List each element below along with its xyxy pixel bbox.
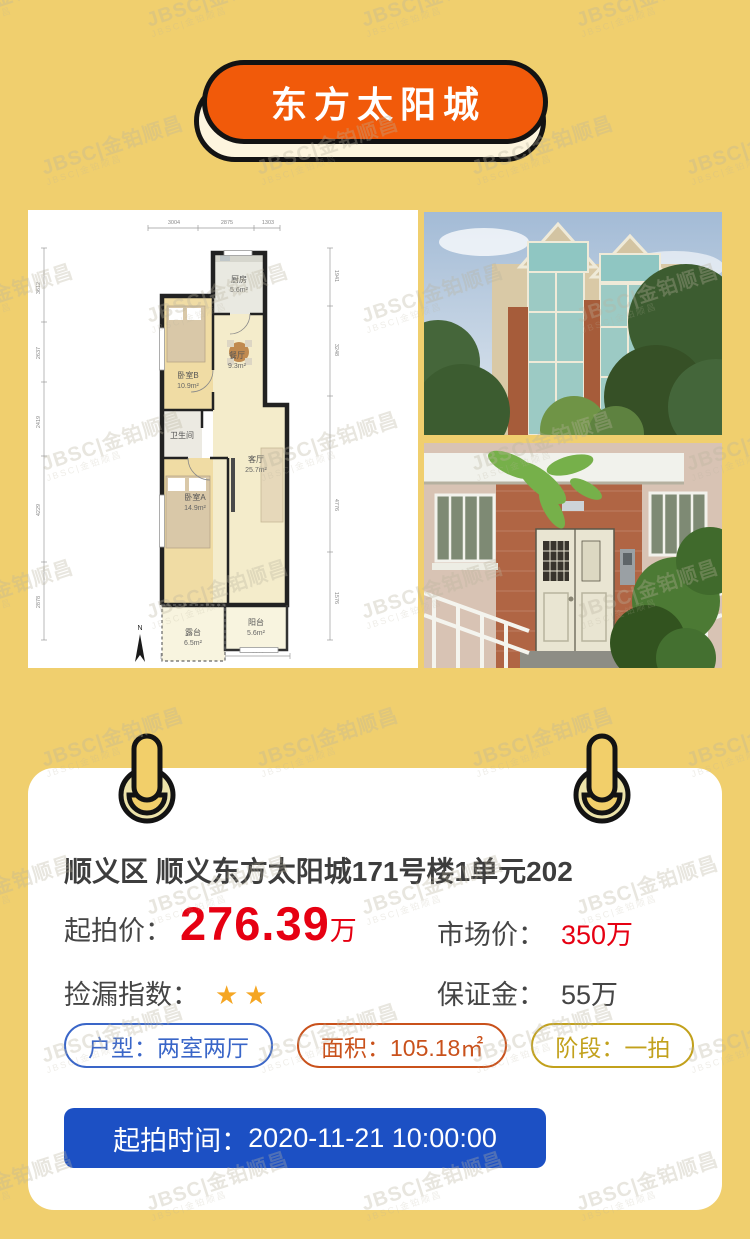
tag-stage: 阶段：一拍	[531, 1023, 694, 1068]
watermark-text: JBSC|金铂顺昌JBSC|金铂顺昌	[574, 0, 724, 39]
room-area: 9.3m²	[228, 363, 247, 370]
room-label: 露台	[185, 627, 201, 637]
project-banner: 东方太阳城	[202, 60, 548, 144]
north-arrow-icon: N	[135, 625, 145, 662]
room-area: 5.6m²	[230, 287, 249, 294]
tag-area: 面积：105.18㎡	[297, 1023, 507, 1068]
dim-label: 4776	[333, 499, 339, 511]
dim-label: 3248	[333, 344, 339, 356]
auction-time-button[interactable]: 起拍时间： 2020-11-21 10:00:00	[64, 1108, 546, 1168]
watermark-text: JBSC|金铂顺昌JBSC|金铂顺昌	[144, 0, 294, 39]
dim-label: 2878	[36, 596, 42, 608]
deposit-row: 保证金： 55万	[437, 973, 618, 1012]
pin-icon	[572, 733, 632, 825]
dim-label: 2875	[221, 220, 233, 226]
tag-house-type: 户型：两室两厅	[64, 1023, 273, 1068]
deposit-value: 55万	[561, 973, 618, 1012]
dim-label: 1941	[333, 270, 339, 282]
dim-label: 3004	[168, 220, 180, 226]
room-area: 10.9m²	[177, 383, 199, 390]
svg-text:N: N	[137, 625, 142, 632]
project-title: 东方太阳城	[202, 60, 548, 144]
room-area: 14.9m²	[184, 505, 206, 512]
auction-time-value: 2020-11-21 10:00:00	[248, 1123, 497, 1154]
start-price-unit: 万	[330, 909, 357, 948]
dim-label: 3612	[36, 282, 42, 294]
room-area: 25.7m²	[245, 467, 267, 474]
market-price-row: 市场价： 350万	[437, 913, 633, 952]
watermark-text: JBSC|金铂顺昌JBSC|金铂顺昌	[684, 114, 750, 187]
star-rating: ★★	[215, 980, 274, 1011]
room-label: 餐厅	[229, 351, 245, 360]
dim-label: 4229	[36, 504, 42, 516]
room-label: 卧室B	[177, 370, 198, 380]
auction-time-label: 起拍时间：	[113, 1119, 248, 1158]
listing-card: 顺义区 顺义东方太阳城171号楼1单元202 起拍价： 276.39 万 市场价…	[28, 768, 722, 1210]
bargain-index-label: 捡漏指数：	[64, 973, 199, 1012]
market-price-value: 350万	[561, 913, 633, 952]
floorplan-drawing: 3004 2875 1303 3518 3670 3612 2637 2419 …	[28, 210, 418, 668]
room-area: 5.6m²	[247, 630, 266, 637]
watermark-text: JBSC|金铂顺昌JBSC|金铂顺昌	[39, 114, 189, 187]
start-price-row: 起拍价： 276.39 万	[64, 896, 357, 951]
dim-label: 2637	[36, 347, 42, 359]
room-label: 卫生间	[170, 430, 194, 440]
dim-label: 2419	[36, 416, 42, 428]
tag-row: 户型：两室两厅 面积：105.18㎡ 阶段：一拍	[64, 1023, 694, 1068]
dim-label: 1576	[333, 592, 339, 604]
room-label: 阳台	[248, 617, 264, 627]
dim-label: 1303	[262, 220, 274, 226]
watermark-text: JBSC|金铂顺昌JBSC|金铂顺昌	[359, 0, 509, 39]
entrance-photo	[424, 443, 722, 668]
deposit-label: 保证金：	[437, 973, 545, 1012]
building-photo	[424, 212, 722, 435]
market-price-label: 市场价：	[437, 913, 545, 952]
watermark-text: JBSC|金铂顺昌JBSC|金铂顺昌	[0, 0, 79, 39]
room-label: 卧室A	[184, 492, 206, 502]
bargain-index-row: 捡漏指数： ★★	[64, 973, 274, 1012]
pin-icon	[117, 733, 177, 825]
start-price-label: 起拍价：	[64, 909, 172, 948]
start-price-value: 276.39	[180, 896, 330, 951]
room-label: 厨房	[231, 274, 247, 284]
listing-title: 顺义区 顺义东方太阳城171号楼1单元202	[64, 850, 704, 890]
floorplan-image: 3004 2875 1303 3518 3670 3612 2637 2419 …	[28, 210, 418, 668]
room-area: 6.5m²	[184, 640, 203, 647]
room-label: 客厅	[248, 454, 264, 464]
